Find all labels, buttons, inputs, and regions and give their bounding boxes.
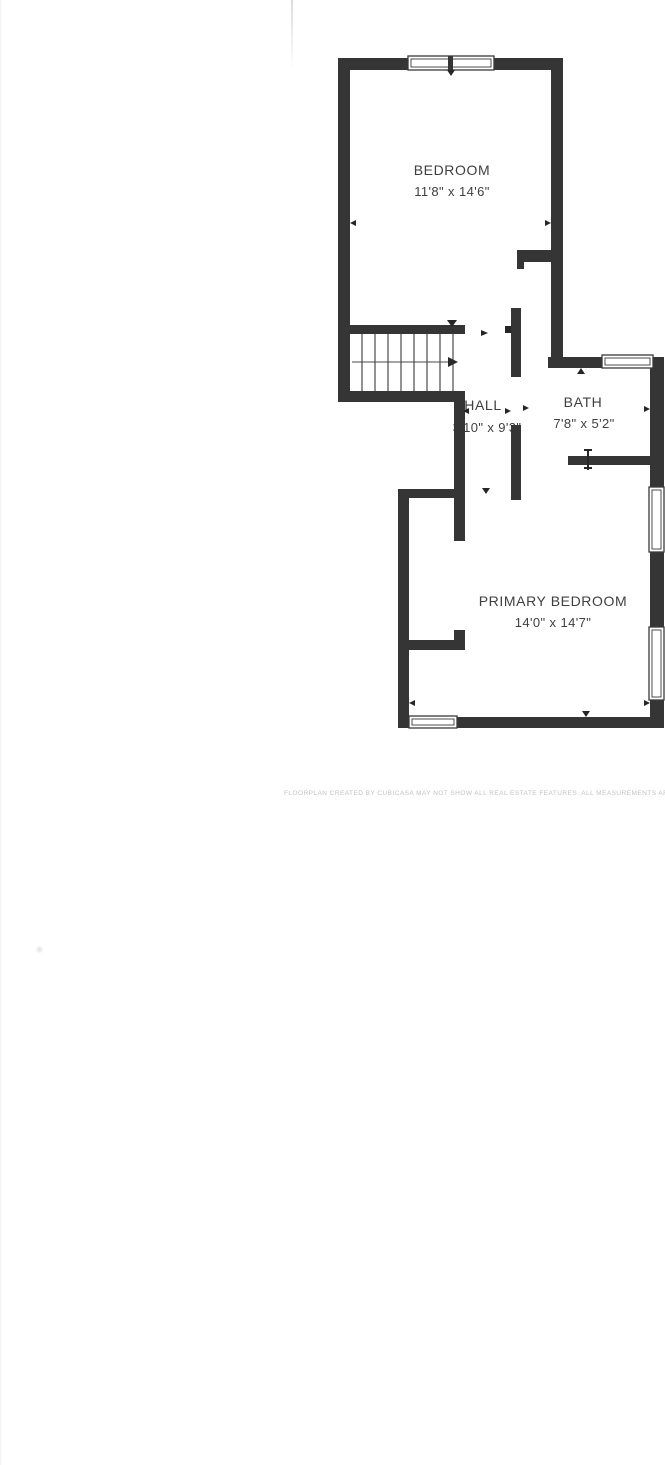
room-name-bedroom: BEDROOM bbox=[414, 162, 491, 178]
room-name-bath: BATH bbox=[564, 394, 603, 410]
marker-icon bbox=[582, 711, 590, 717]
marker-icon bbox=[523, 405, 529, 411]
marker-icon bbox=[409, 700, 415, 706]
floorplan-page: BEDROOM 11'8" x 14'6" HALL 3'10" x 9'3" … bbox=[0, 0, 665, 1465]
scan-artifact-smudge bbox=[36, 946, 43, 953]
scan-artifact-vertical-line bbox=[291, 0, 293, 70]
room-dims-bedroom: 11'8" x 14'6" bbox=[414, 184, 490, 199]
staircase bbox=[352, 334, 458, 391]
disclaimer-text: FLOORPLAN CREATED BY CUBICASA MAY NOT SH… bbox=[284, 790, 665, 797]
walls bbox=[338, 58, 664, 728]
marker-icon bbox=[447, 70, 455, 76]
window-symbol-primary-bottom bbox=[409, 716, 457, 728]
scan-artifact-left-edge bbox=[0, 0, 2, 1465]
marker-icon bbox=[545, 220, 551, 226]
window-symbol-primary-right-upper bbox=[649, 487, 664, 552]
marker-icon bbox=[505, 408, 511, 414]
room-dims-primary-bedroom: 14'0" x 14'7" bbox=[515, 615, 592, 630]
marker-icon bbox=[505, 326, 511, 333]
window-symbol-bedroom-top bbox=[408, 56, 494, 70]
window-symbol-bath bbox=[602, 355, 653, 368]
room-name-hall: HALL bbox=[464, 397, 501, 413]
window-symbol-primary-right-lower bbox=[649, 627, 664, 700]
marker-icon bbox=[644, 406, 650, 412]
floor-plan: BEDROOM 11'8" x 14'6" HALL 3'10" x 9'3" … bbox=[0, 0, 665, 1465]
marker-icon bbox=[644, 700, 650, 706]
marker-icon bbox=[482, 488, 490, 494]
room-name-primary-bedroom: PRIMARY BEDROOM bbox=[479, 593, 628, 609]
room-dims-bath: 7'8" x 5'2" bbox=[553, 416, 614, 431]
marker-icon bbox=[481, 330, 488, 336]
marker-icon bbox=[577, 368, 585, 374]
marker-icon bbox=[350, 220, 356, 226]
